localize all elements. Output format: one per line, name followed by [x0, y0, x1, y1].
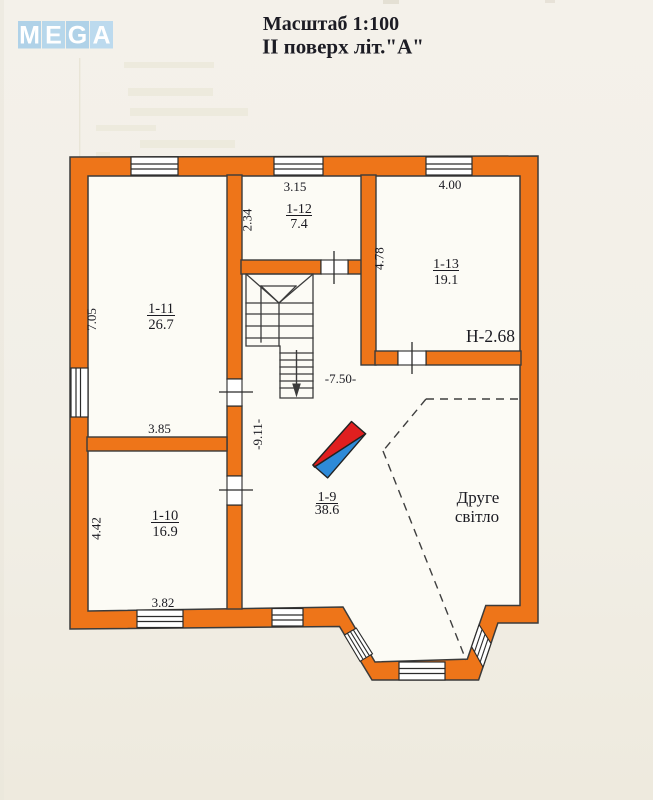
svg-text:4.42: 4.42	[89, 517, 104, 540]
svg-text:7.4: 7.4	[290, 217, 308, 232]
svg-text:Н-2.68: Н-2.68	[466, 326, 515, 346]
svg-text:ІІ поверх літ."А": ІІ поверх літ."А"	[262, 35, 424, 59]
svg-text:38.6: 38.6	[315, 503, 340, 518]
svg-text:-7.50-: -7.50-	[325, 371, 356, 386]
svg-text:16.9: 16.9	[152, 524, 177, 540]
svg-text:E: E	[45, 22, 62, 50]
svg-text:1-13: 1-13	[433, 257, 459, 272]
svg-text:26.7: 26.7	[148, 317, 173, 333]
svg-text:3.85: 3.85	[148, 421, 171, 436]
svg-text:4.00: 4.00	[439, 177, 462, 192]
svg-text:4.78: 4.78	[371, 247, 386, 270]
svg-text:Масштаб 1:100: Масштаб 1:100	[263, 13, 399, 35]
svg-text:1-12: 1-12	[286, 202, 312, 217]
svg-text:3.15: 3.15	[284, 179, 307, 194]
svg-text:A: A	[92, 22, 110, 50]
svg-text:G: G	[68, 22, 87, 50]
svg-text:-9.11-: -9.11-	[250, 419, 265, 450]
svg-text:3.82: 3.82	[152, 595, 175, 610]
svg-text:19.1: 19.1	[434, 273, 459, 288]
svg-text:1-11: 1-11	[148, 301, 174, 317]
svg-text:M: M	[19, 22, 40, 50]
svg-text:1-10: 1-10	[152, 508, 179, 524]
svg-text:Друге: Друге	[457, 488, 500, 507]
svg-text:2.34: 2.34	[240, 208, 255, 231]
svg-text:світло: світло	[455, 507, 499, 526]
svg-text:7.05: 7.05	[84, 308, 99, 331]
